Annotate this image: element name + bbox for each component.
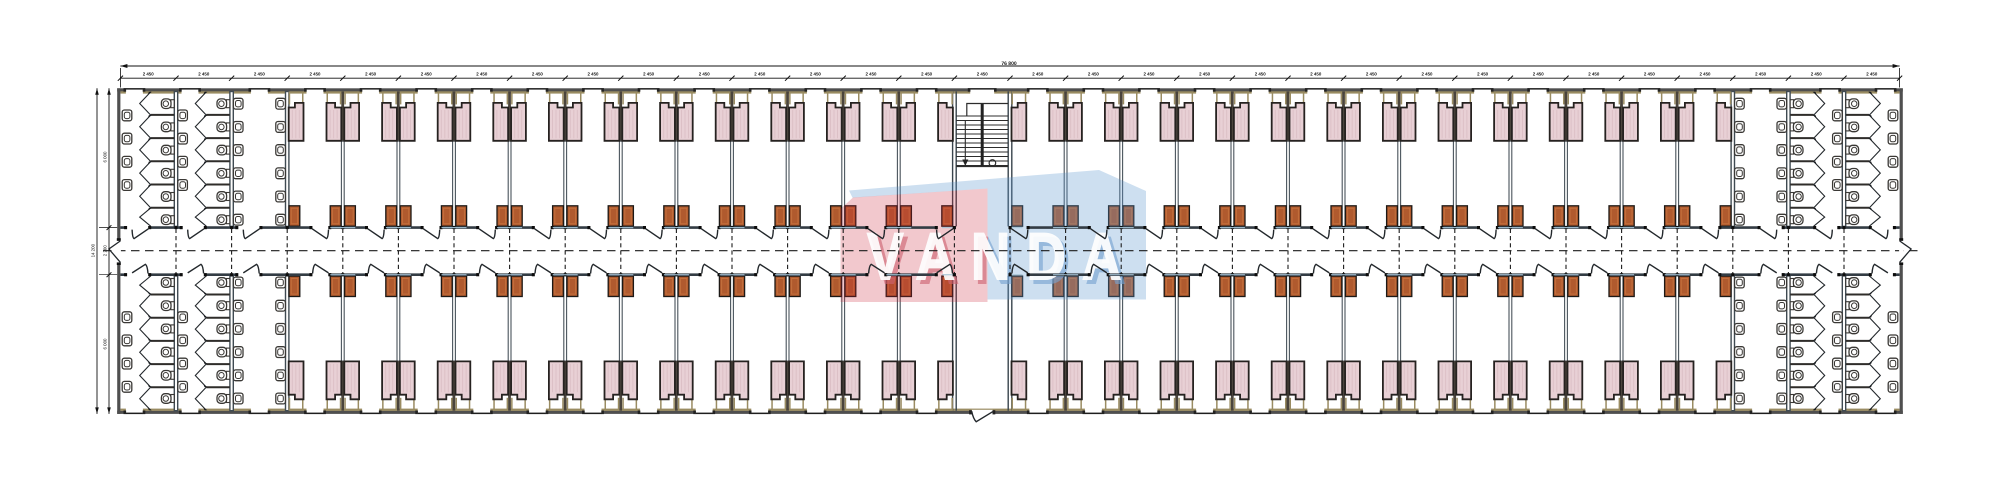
svg-text:2 450: 2 450	[310, 71, 322, 76]
svg-text:2 450: 2 450	[1533, 71, 1545, 76]
svg-text:2 450: 2 450	[1644, 71, 1656, 76]
svg-text:2 450: 2 450	[254, 71, 266, 76]
svg-text:2 450: 2 450	[699, 71, 711, 76]
svg-text:2 450: 2 450	[1588, 71, 1600, 76]
svg-text:2 450: 2 450	[643, 71, 655, 76]
svg-text:6 000: 6 000	[103, 338, 108, 350]
svg-text:2 450: 2 450	[754, 71, 766, 76]
svg-text:2 450: 2 450	[1199, 71, 1211, 76]
svg-text:2 450: 2 450	[421, 71, 433, 76]
svg-text:2 450: 2 450	[921, 71, 933, 76]
svg-text:2 450: 2 450	[1477, 71, 1489, 76]
svg-text:2 450: 2 450	[1755, 71, 1767, 76]
svg-text:2 450: 2 450	[1700, 71, 1712, 76]
svg-text:2 450: 2 450	[1310, 71, 1322, 76]
svg-text:VANDA: VANDA	[867, 219, 1137, 293]
svg-text:2 450: 2 450	[365, 71, 377, 76]
svg-text:2 450: 2 450	[866, 71, 878, 76]
svg-text:2 450: 2 450	[1866, 71, 1878, 76]
svg-text:2 450: 2 450	[1811, 71, 1823, 76]
svg-text:2 450: 2 450	[588, 71, 600, 76]
svg-text:76 800: 76 800	[1001, 61, 1017, 67]
svg-text:6 000: 6 000	[103, 151, 108, 163]
svg-text:2 450: 2 450	[1255, 71, 1267, 76]
svg-text:2 450: 2 450	[1366, 71, 1378, 76]
svg-text:2 450: 2 450	[977, 71, 989, 76]
svg-text:2 200: 2 200	[103, 245, 108, 257]
svg-text:2 450: 2 450	[1088, 71, 1100, 76]
svg-text:14 200: 14 200	[91, 243, 96, 257]
svg-text:2 450: 2 450	[143, 71, 155, 76]
svg-text:2 450: 2 450	[1144, 71, 1156, 76]
svg-text:2 450: 2 450	[198, 71, 210, 76]
svg-text:2 450: 2 450	[476, 71, 488, 76]
svg-text:2 450: 2 450	[532, 71, 544, 76]
svg-text:2 450: 2 450	[810, 71, 822, 76]
svg-text:2 450: 2 450	[1422, 71, 1434, 76]
svg-text:2 450: 2 450	[1032, 71, 1044, 76]
